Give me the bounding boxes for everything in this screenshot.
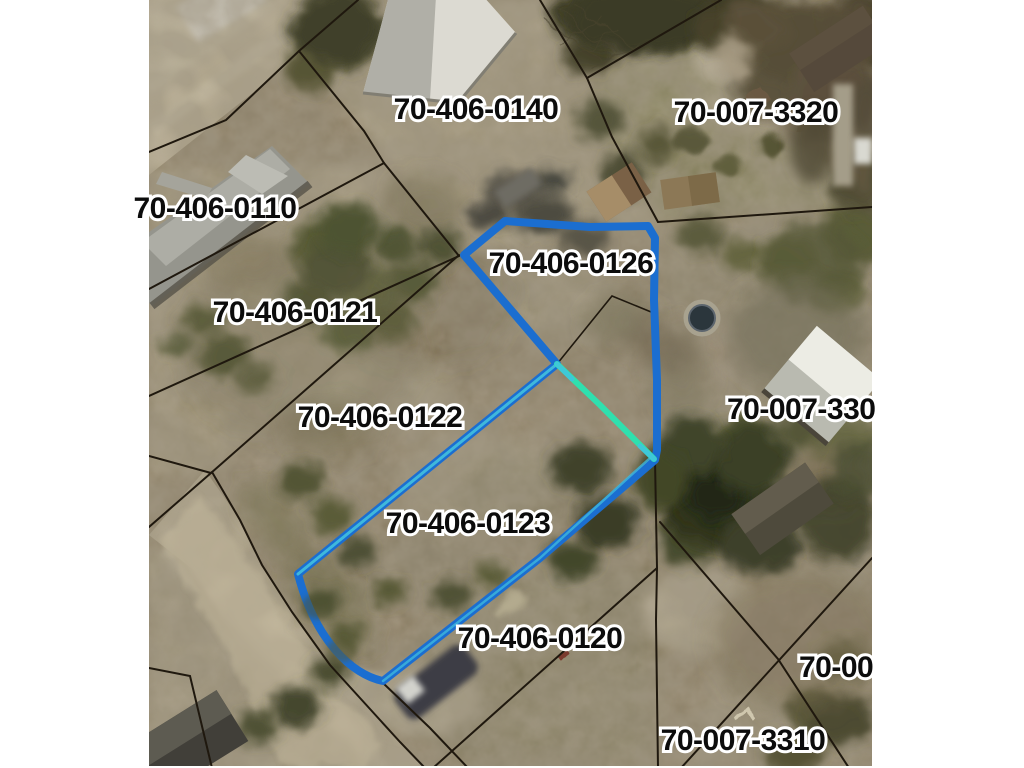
svg-text:70-406-0121: 70-406-0121 [213, 296, 378, 329]
svg-text:70-007-330: 70-007-330 [727, 393, 875, 426]
svg-text:70-00: 70-00 [799, 651, 873, 684]
svg-text:70-406-0140: 70-406-0140 [394, 93, 559, 126]
svg-text:70-406-0122: 70-406-0122 [298, 401, 463, 434]
svg-text:70-406-0120: 70-406-0120 [458, 622, 623, 655]
svg-text:70-406-0123: 70-406-0123 [386, 507, 551, 540]
svg-text:70-406-0126: 70-406-0126 [489, 247, 654, 280]
svg-text:70-007-3320: 70-007-3320 [674, 96, 839, 129]
svg-text:70-406-0110: 70-406-0110 [134, 192, 297, 225]
svg-text:70-007-3310: 70-007-3310 [661, 724, 826, 757]
